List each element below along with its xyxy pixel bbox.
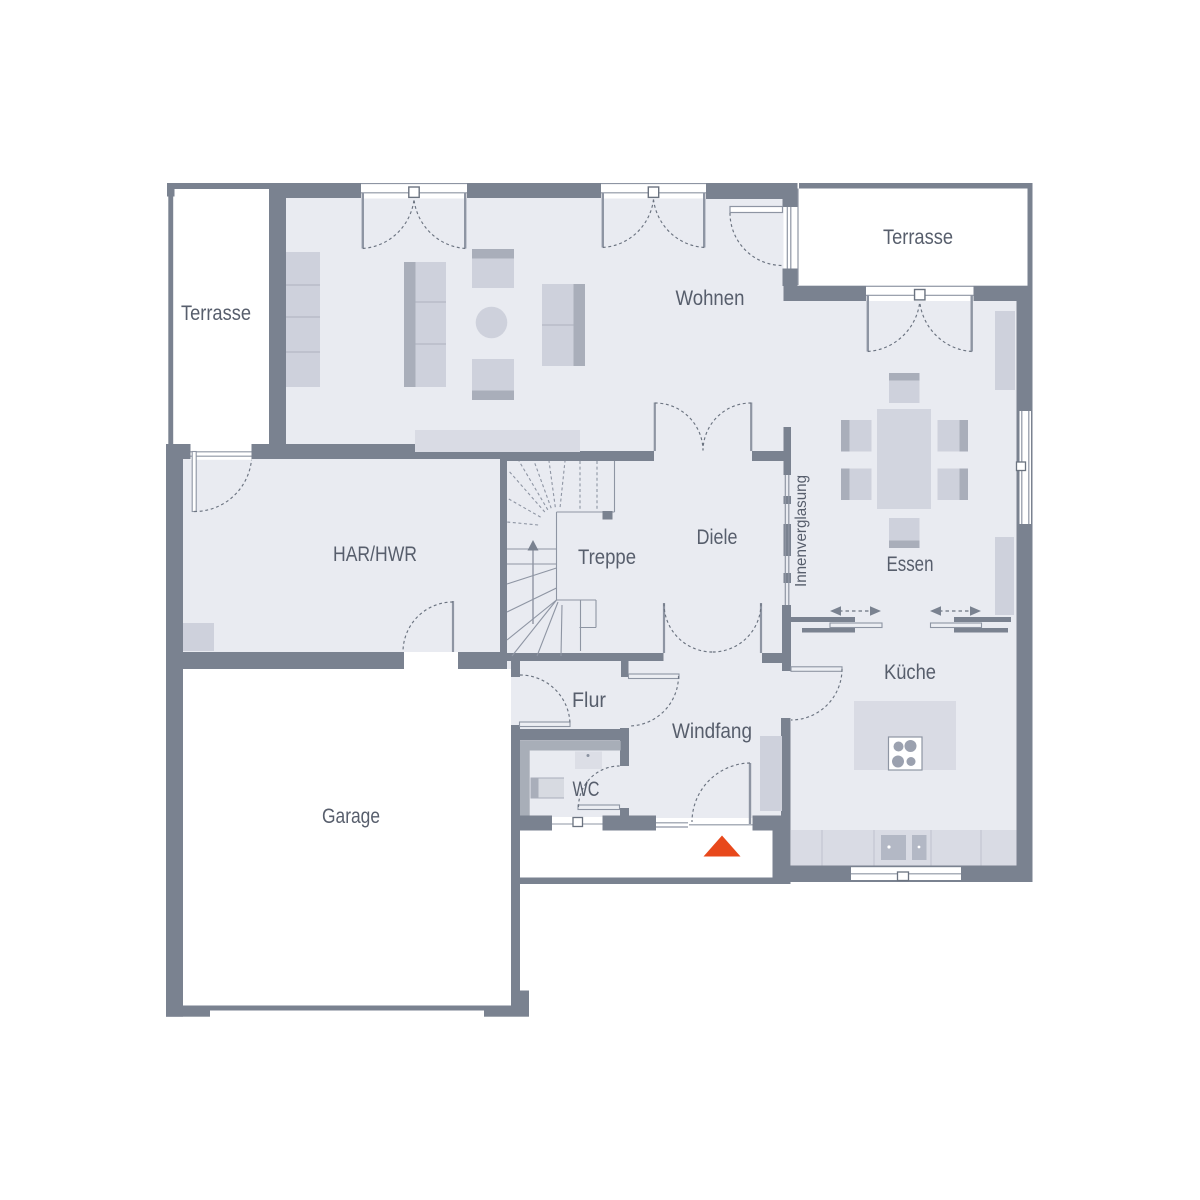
svg-text:Wohnen: Wohnen xyxy=(676,287,745,310)
svg-text:Essen: Essen xyxy=(887,553,934,576)
svg-text:Flur: Flur xyxy=(572,689,606,712)
svg-text:Terrasse: Terrasse xyxy=(883,226,953,249)
svg-text:Windfang: Windfang xyxy=(672,720,752,743)
svg-text:Innenverglasung: Innenverglasung xyxy=(793,475,810,587)
svg-text:Treppe: Treppe xyxy=(578,546,636,569)
svg-text:Terrasse: Terrasse xyxy=(181,302,251,325)
svg-text:WC: WC xyxy=(573,778,600,801)
svg-text:HAR/HWR: HAR/HWR xyxy=(333,543,417,566)
svg-text:Garage: Garage xyxy=(322,805,380,828)
svg-text:Diele: Diele xyxy=(697,526,738,549)
svg-text:Küche: Küche xyxy=(884,661,936,684)
